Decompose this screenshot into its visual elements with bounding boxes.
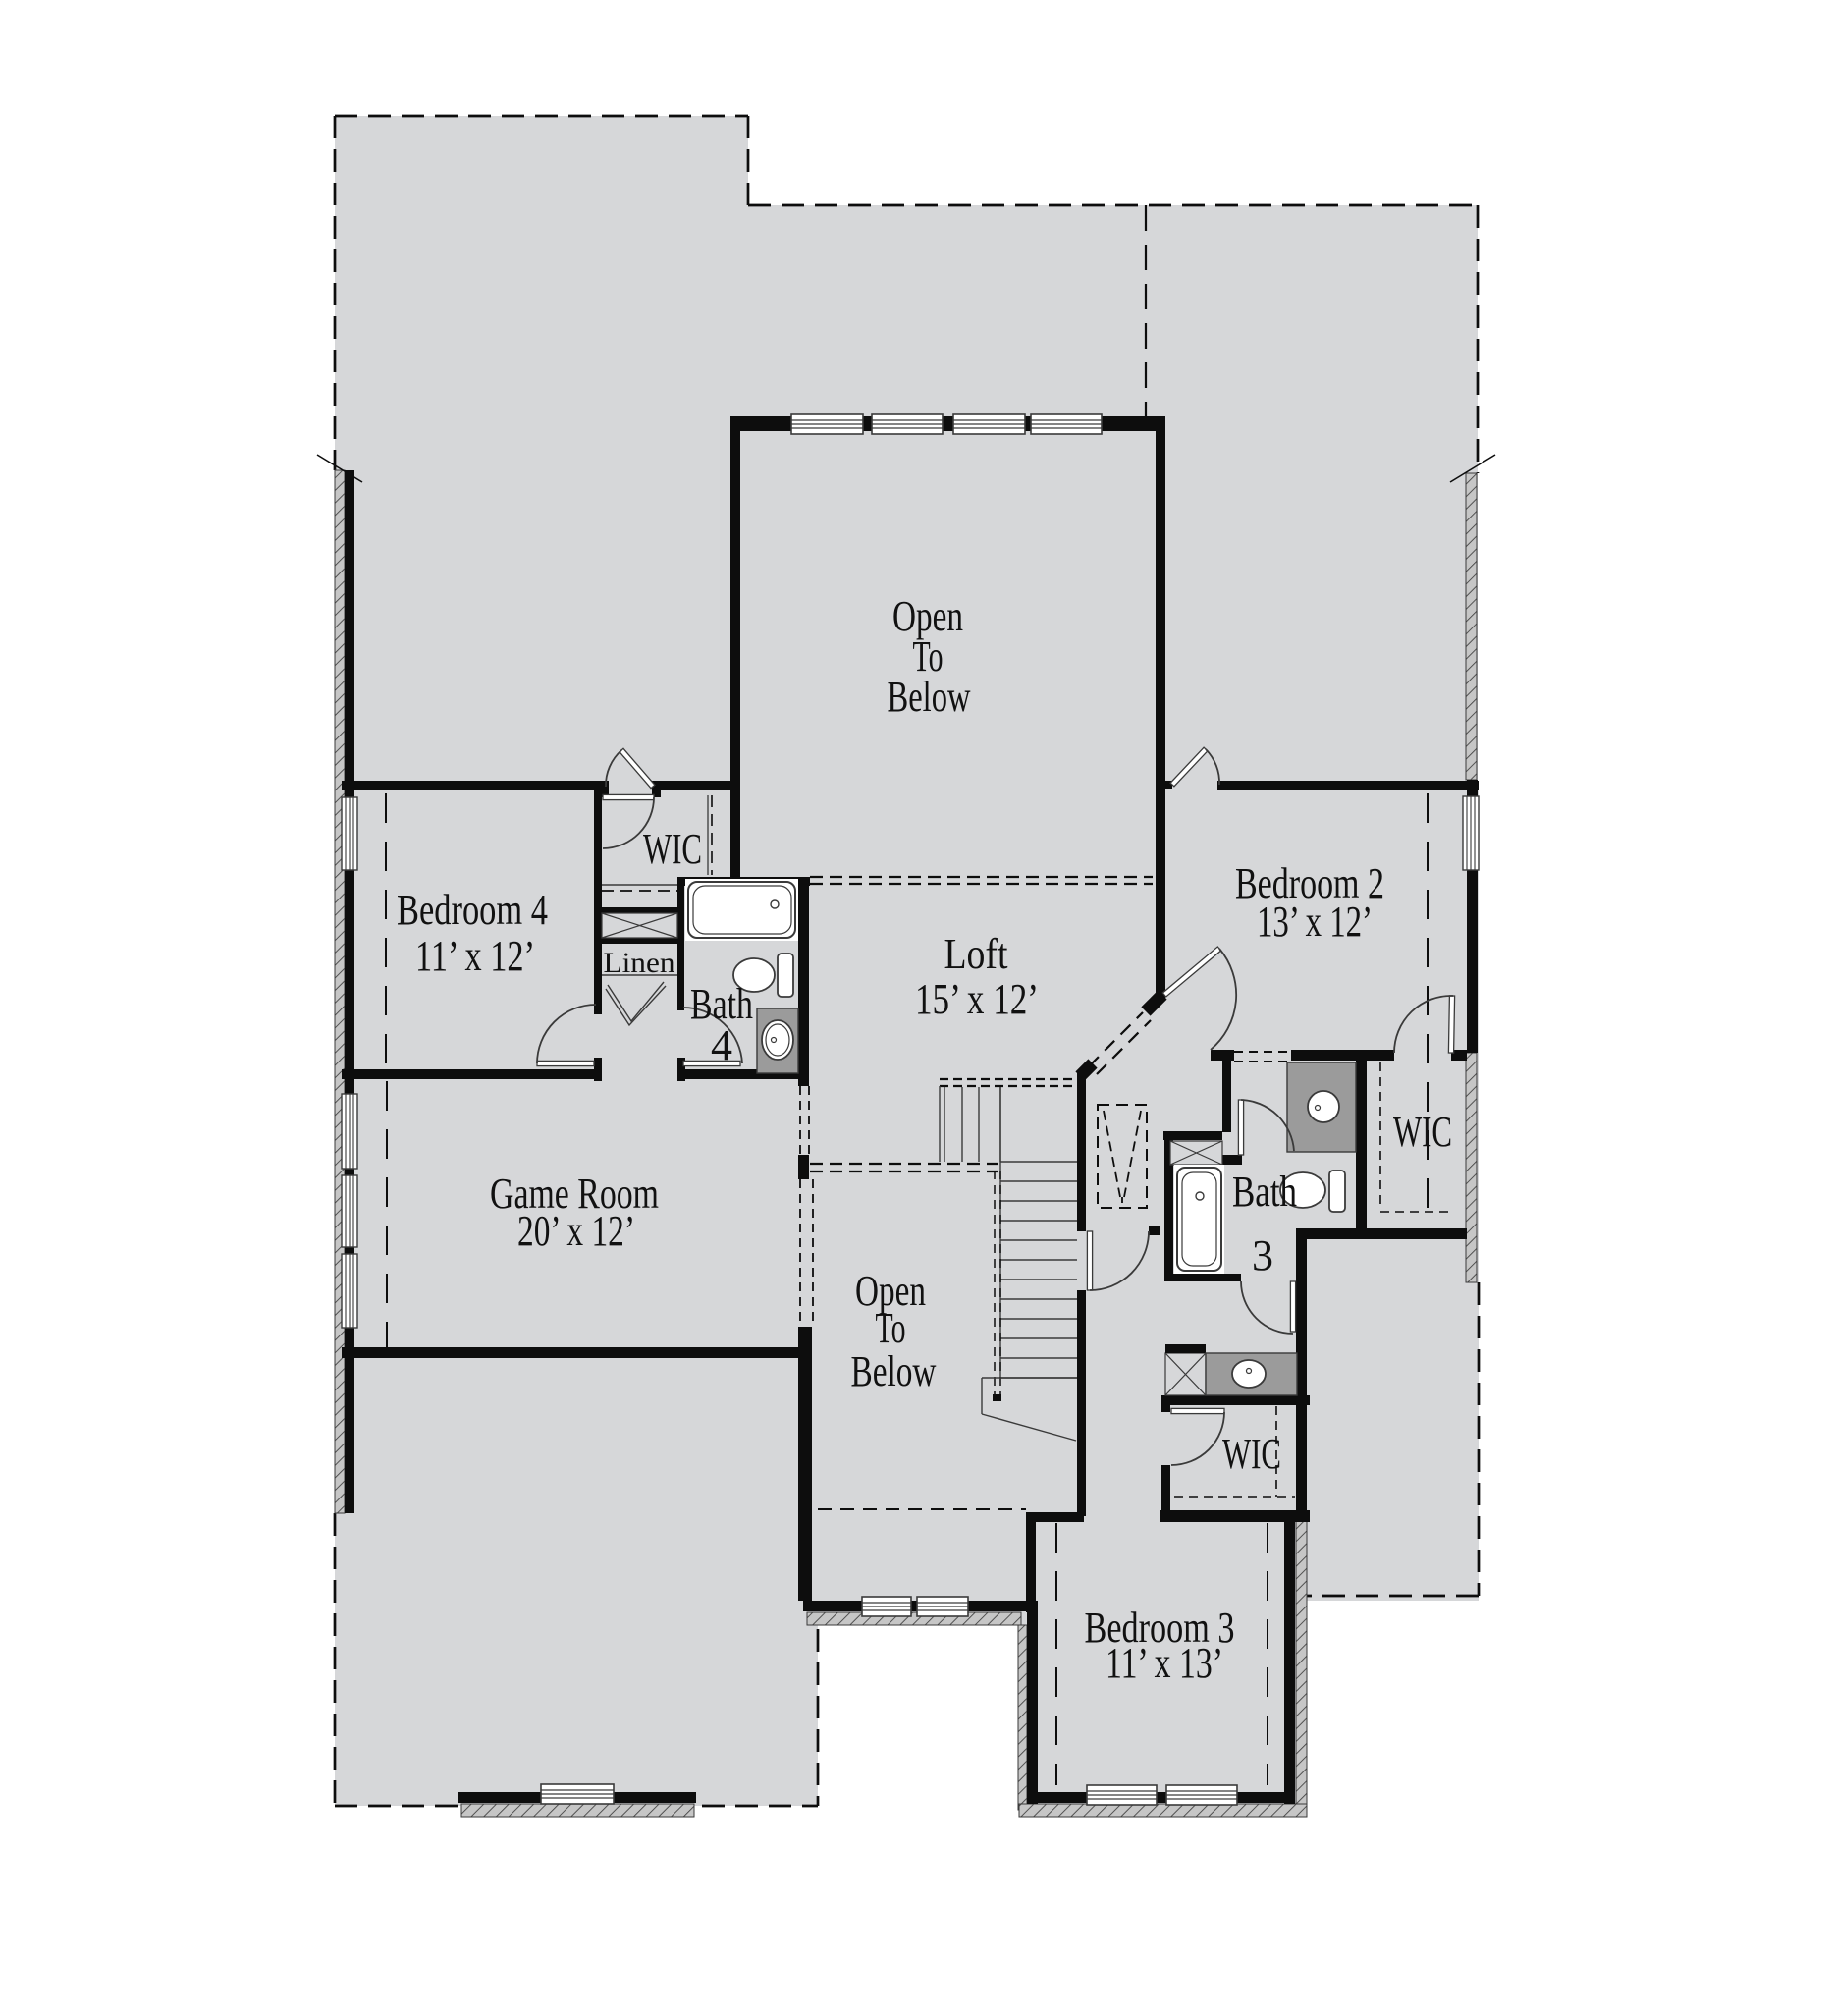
svg-text:Below: Below bbox=[851, 1347, 937, 1395]
svg-text:Bedroom 4: Bedroom 4 bbox=[397, 886, 548, 934]
svg-text:To: To bbox=[876, 1304, 906, 1352]
svg-text:15’ x 12’: 15’ x 12’ bbox=[915, 975, 1039, 1023]
svg-text:WIC: WIC bbox=[643, 825, 702, 873]
svg-text:13’ x 12’: 13’ x 12’ bbox=[1257, 898, 1373, 946]
svg-text:Bath: Bath bbox=[1232, 1168, 1297, 1216]
svg-text:Linen: Linen bbox=[604, 947, 675, 979]
svg-text:11’ x 13’: 11’ x 13’ bbox=[1106, 1639, 1223, 1687]
svg-text:3: 3 bbox=[1252, 1231, 1273, 1280]
svg-text:20’ x 12’: 20’ x 12’ bbox=[517, 1207, 635, 1255]
svg-text:11’ x 12’: 11’ x 12’ bbox=[415, 932, 535, 980]
svg-text:Below: Below bbox=[888, 673, 971, 721]
svg-text:4: 4 bbox=[711, 1021, 732, 1069]
svg-text:WIC: WIC bbox=[1222, 1430, 1281, 1478]
svg-text:Loft: Loft bbox=[944, 930, 1008, 978]
svg-text:WIC: WIC bbox=[1393, 1108, 1452, 1156]
